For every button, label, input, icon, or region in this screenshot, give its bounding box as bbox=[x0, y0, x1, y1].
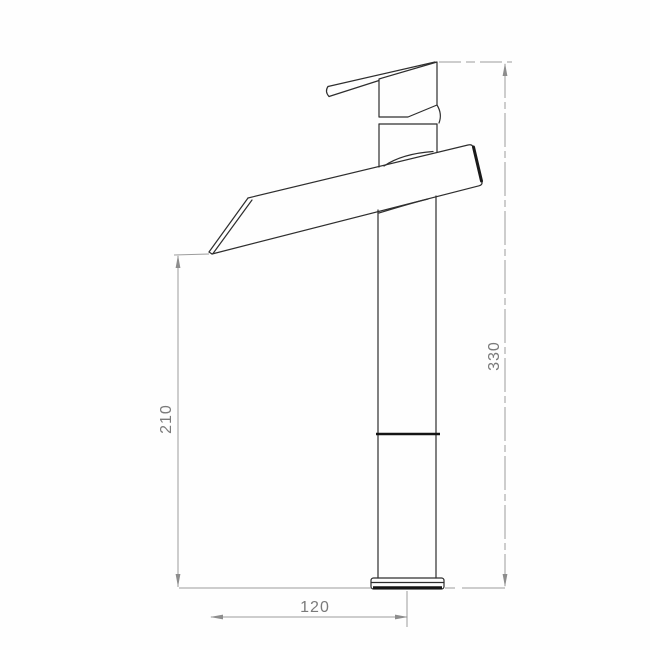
dimension-210: 210 bbox=[158, 254, 209, 587]
base bbox=[371, 578, 444, 589]
spout-tip-end bbox=[209, 252, 212, 254]
lever-tip-cap bbox=[326, 87, 329, 97]
spout-body bbox=[212, 145, 482, 254]
dim-120-arrow-left bbox=[210, 615, 223, 620]
lever-bottom-edge bbox=[329, 81, 379, 97]
faucet-technical-drawing: 210 330 120 bbox=[0, 0, 650, 650]
dimension-330: 330 bbox=[439, 62, 512, 587]
neck bbox=[379, 124, 437, 167]
spout-boss-lower-arc bbox=[379, 199, 428, 213]
dim-330-arrow-down bbox=[503, 574, 508, 587]
lever-top-edge bbox=[328, 62, 435, 87]
faucet-outline bbox=[209, 62, 482, 589]
column bbox=[376, 196, 440, 578]
drawing-canvas: 210 330 120 bbox=[0, 0, 650, 650]
dim-330-arrow-up bbox=[503, 63, 508, 76]
handle-block bbox=[379, 62, 440, 123]
dim-330-label: 330 bbox=[486, 341, 503, 371]
dim-120-label: 120 bbox=[300, 599, 330, 616]
dim-210-arrow-down bbox=[176, 574, 181, 587]
dimension-120: 120 bbox=[210, 591, 408, 627]
dim-210-arrow-up bbox=[176, 255, 181, 268]
dim-210-extension-line bbox=[174, 254, 209, 255]
spout-tip-outer-edge bbox=[209, 198, 248, 252]
dim-120-arrow-right bbox=[395, 615, 408, 620]
handle-block-body bbox=[379, 62, 437, 117]
spout bbox=[209, 145, 482, 254]
spout-end-cap bbox=[474, 147, 482, 181]
dim-210-label: 210 bbox=[158, 404, 175, 434]
handle-block-collar-arc bbox=[437, 105, 440, 123]
